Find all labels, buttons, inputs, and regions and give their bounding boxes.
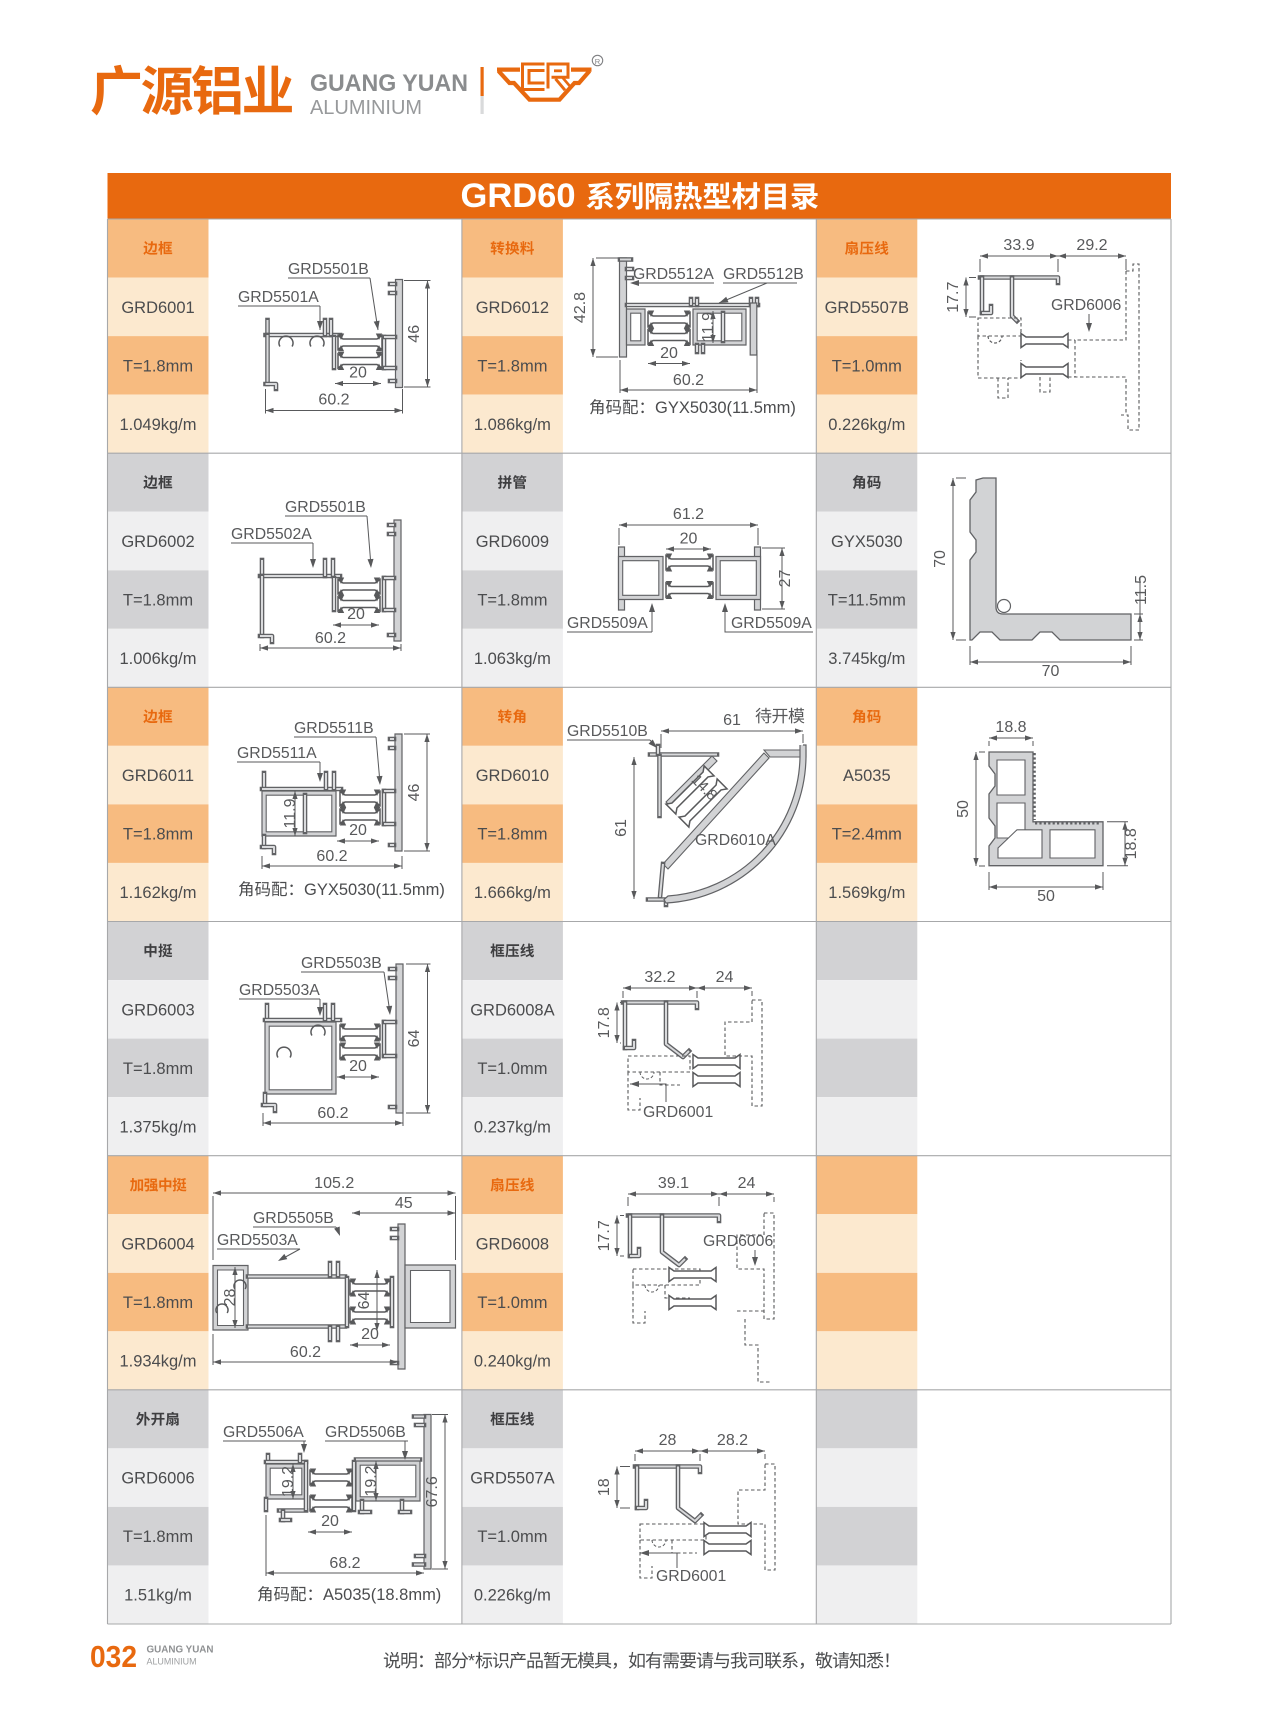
- svg-text:39.1: 39.1: [658, 1175, 689, 1192]
- svg-text:20: 20: [349, 1058, 367, 1075]
- svg-text:GRD6006: GRD6006: [703, 1233, 773, 1250]
- svg-text:60.2: 60.2: [290, 1344, 321, 1361]
- svg-text:T=1.8mm: T=1.8mm: [477, 592, 547, 610]
- svg-text:GRD5502A: GRD5502A: [231, 526, 312, 543]
- svg-text:24: 24: [716, 969, 734, 986]
- svg-text:GRD6006: GRD6006: [121, 1470, 194, 1488]
- svg-text:19.2: 19.2: [280, 1466, 297, 1497]
- svg-text:GRD5511A: GRD5511A: [237, 745, 317, 762]
- svg-text:60.2: 60.2: [317, 1105, 348, 1122]
- svg-text:T=1.0mm: T=1.0mm: [477, 1528, 547, 1546]
- svg-text:46: 46: [406, 784, 423, 802]
- svg-text:T=1.8mm: T=1.8mm: [477, 357, 547, 375]
- svg-text:GRD5507A: GRD5507A: [470, 1470, 554, 1488]
- svg-text:20: 20: [347, 606, 365, 623]
- svg-text:1.162kg/m: 1.162kg/m: [119, 884, 196, 902]
- svg-text:24: 24: [738, 1175, 756, 1192]
- svg-text:T=1.0mm: T=1.0mm: [477, 1294, 547, 1312]
- svg-text:28.2: 28.2: [717, 1432, 748, 1449]
- svg-text:GRD6001: GRD6001: [121, 299, 194, 317]
- svg-text:29.2: 29.2: [1076, 237, 1107, 254]
- svg-text:19.2: 19.2: [363, 1465, 380, 1496]
- svg-text:T=1.8mm: T=1.8mm: [123, 1294, 193, 1312]
- svg-text:GRD5509A: GRD5509A: [567, 615, 648, 632]
- svg-text:032: 032: [90, 1639, 137, 1674]
- svg-text:T=1.0mm: T=1.0mm: [477, 1060, 547, 1078]
- svg-text:GRD5511B: GRD5511B: [294, 720, 374, 737]
- svg-text:GRD6003: GRD6003: [121, 1001, 194, 1019]
- svg-text:ALUMINIUM: ALUMINIUM: [310, 97, 422, 119]
- svg-text:1.934kg/m: 1.934kg/m: [119, 1353, 196, 1371]
- svg-text:17.7: 17.7: [945, 282, 962, 313]
- svg-text:45: 45: [395, 1195, 413, 1212]
- svg-text:18: 18: [596, 1478, 613, 1496]
- svg-text:GRD5509A: GRD5509A: [731, 615, 812, 632]
- svg-text:GRD5503A: GRD5503A: [217, 1232, 298, 1249]
- svg-text:61: 61: [613, 819, 630, 837]
- svg-text:11.9: 11.9: [282, 798, 299, 828]
- svg-text:GUANG YUAN: GUANG YUAN: [310, 70, 468, 97]
- svg-text:20: 20: [321, 1513, 339, 1530]
- svg-text:ALUMINIUM: ALUMINIUM: [147, 1657, 197, 1667]
- svg-text:GRD6010A: GRD6010A: [695, 832, 776, 849]
- svg-text:GRD5501B: GRD5501B: [285, 499, 366, 516]
- svg-text:1.666kg/m: 1.666kg/m: [474, 884, 551, 902]
- svg-text:GRD6006: GRD6006: [1051, 297, 1121, 314]
- svg-text:T=1.8mm: T=1.8mm: [477, 826, 547, 844]
- svg-text:T=1.8mm: T=1.8mm: [123, 1060, 193, 1078]
- svg-text:GYX5030: GYX5030: [831, 533, 903, 551]
- svg-text:GRD6012: GRD6012: [476, 299, 549, 317]
- svg-text:70: 70: [1042, 663, 1060, 680]
- svg-text:60.2: 60.2: [315, 630, 346, 647]
- svg-text:32.2: 32.2: [644, 969, 675, 986]
- svg-text:GRD5503B: GRD5503B: [301, 955, 382, 972]
- svg-text:1.375kg/m: 1.375kg/m: [119, 1118, 196, 1136]
- svg-text:64: 64: [406, 1030, 423, 1048]
- svg-text:GRD6002: GRD6002: [121, 533, 194, 551]
- svg-text:18.8: 18.8: [1123, 828, 1140, 859]
- svg-text:50: 50: [955, 800, 972, 818]
- svg-text:20: 20: [680, 531, 698, 548]
- svg-text:3.745kg/m: 3.745kg/m: [828, 650, 905, 668]
- svg-text:60.2: 60.2: [316, 848, 347, 865]
- svg-text:T=2.4mm: T=2.4mm: [832, 826, 902, 844]
- svg-text:1.569kg/m: 1.569kg/m: [828, 884, 905, 902]
- svg-text:T=1.0mm: T=1.0mm: [832, 357, 902, 375]
- svg-text:GRD5506B: GRD5506B: [325, 1424, 406, 1441]
- svg-text:A5035: A5035: [843, 767, 891, 785]
- svg-text:GRD5512B: GRD5512B: [723, 266, 804, 283]
- svg-text:GRD5512A: GRD5512A: [633, 266, 714, 283]
- svg-text:17.8: 17.8: [596, 1007, 613, 1038]
- svg-text:*: *: [468, 1651, 475, 1671]
- svg-text:GRD5507B: GRD5507B: [825, 299, 909, 317]
- svg-text:GRD5501B: GRD5501B: [288, 261, 369, 278]
- svg-text:64: 64: [356, 1292, 373, 1310]
- svg-text:GRD5503A: GRD5503A: [239, 982, 320, 999]
- svg-text:28: 28: [659, 1432, 677, 1449]
- svg-text:1.049kg/m: 1.049kg/m: [119, 416, 196, 434]
- svg-text:11.9: 11.9: [700, 312, 717, 342]
- svg-text:1.086kg/m: 1.086kg/m: [474, 416, 551, 434]
- svg-text:R: R: [595, 57, 601, 66]
- svg-text:61.2: 61.2: [673, 506, 704, 523]
- svg-text:60.2: 60.2: [673, 372, 704, 389]
- svg-text:50: 50: [1037, 888, 1055, 905]
- svg-text:0.226kg/m: 0.226kg/m: [828, 416, 905, 434]
- svg-text:GRD6001: GRD6001: [656, 1568, 726, 1585]
- svg-text:60.2: 60.2: [318, 392, 349, 409]
- svg-text:68.2: 68.2: [329, 1555, 360, 1572]
- svg-text:27: 27: [777, 570, 794, 588]
- svg-text:105.2: 105.2: [314, 1175, 354, 1192]
- svg-text:0.237kg/m: 0.237kg/m: [474, 1118, 551, 1136]
- svg-text:17.7: 17.7: [596, 1220, 613, 1251]
- svg-text:GRD6009: GRD6009: [476, 533, 549, 551]
- svg-text:18.8: 18.8: [995, 719, 1026, 736]
- svg-text:1.063kg/m: 1.063kg/m: [474, 650, 551, 668]
- svg-text:T=1.8mm: T=1.8mm: [123, 826, 193, 844]
- svg-text:GRD6004: GRD6004: [121, 1236, 194, 1254]
- svg-text:GRD5505B: GRD5505B: [253, 1210, 334, 1227]
- svg-text:T=1.8mm: T=1.8mm: [123, 357, 193, 375]
- svg-text:GRD5510B: GRD5510B: [567, 723, 648, 740]
- svg-text:GYX5030(11.5mm): GYX5030(11.5mm): [304, 881, 445, 899]
- svg-text:GRD6008A: GRD6008A: [470, 1001, 554, 1019]
- svg-text:28: 28: [222, 1289, 239, 1307]
- svg-text:1.51kg/m: 1.51kg/m: [124, 1587, 192, 1605]
- svg-text:GYX5030(11.5mm): GYX5030(11.5mm): [655, 399, 796, 417]
- svg-text:67.6: 67.6: [424, 1476, 441, 1507]
- svg-text:T=1.8mm: T=1.8mm: [123, 592, 193, 610]
- svg-text:GRD6010: GRD6010: [476, 767, 549, 785]
- svg-text:20: 20: [349, 822, 367, 839]
- svg-text:61: 61: [723, 712, 741, 729]
- svg-text:T=1.8mm: T=1.8mm: [123, 1528, 193, 1546]
- svg-text:42.8: 42.8: [572, 292, 589, 323]
- svg-text:0.240kg/m: 0.240kg/m: [474, 1353, 551, 1371]
- svg-text:1.006kg/m: 1.006kg/m: [119, 650, 196, 668]
- svg-text:11.5: 11.5: [1133, 575, 1150, 605]
- svg-text:46: 46: [406, 325, 423, 343]
- svg-text:GRD6001: GRD6001: [643, 1104, 713, 1121]
- svg-text:0.226kg/m: 0.226kg/m: [474, 1587, 551, 1605]
- svg-text:GRD5506A: GRD5506A: [223, 1424, 304, 1441]
- svg-text:GRD5501A: GRD5501A: [238, 289, 319, 306]
- svg-text:GRD6011: GRD6011: [122, 767, 194, 785]
- svg-text:A5035(18.8mm): A5035(18.8mm): [323, 1586, 441, 1604]
- svg-text:GRD60: GRD60: [461, 177, 576, 215]
- svg-text:GUANG YUAN: GUANG YUAN: [147, 1645, 214, 1656]
- svg-text:20: 20: [349, 365, 367, 382]
- svg-text:T=11.5mm: T=11.5mm: [828, 592, 906, 610]
- svg-text:GRD6008: GRD6008: [476, 1236, 549, 1254]
- svg-text:33.9: 33.9: [1003, 237, 1034, 254]
- svg-text:20: 20: [361, 1326, 379, 1343]
- svg-text:70: 70: [932, 550, 949, 568]
- svg-text:20: 20: [660, 345, 678, 362]
